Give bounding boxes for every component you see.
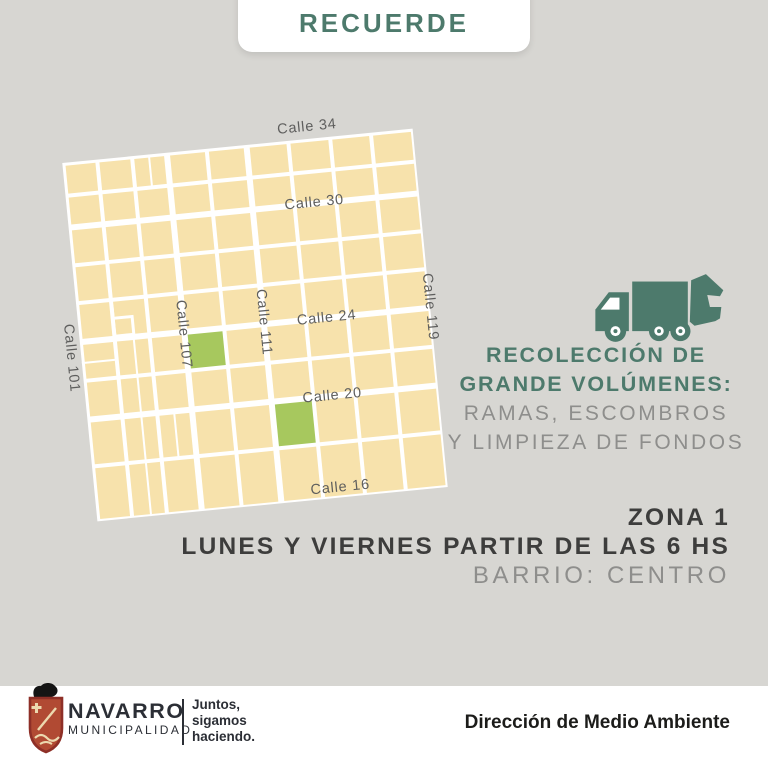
collection-items-line2: Y LIMPIEZA DE FONDOS	[440, 428, 752, 457]
city-block	[173, 184, 210, 214]
slogan: Juntos, sigamos haciendo.	[192, 697, 255, 745]
city-block	[376, 164, 416, 195]
flyer-canvas: RECUERDE Calle 34Calle 30Calle 24Calle 2…	[0, 0, 768, 768]
city-block	[373, 131, 413, 163]
collection-heading-line1: RECOLECCIÓN DE	[440, 341, 752, 370]
city-block	[86, 380, 120, 417]
city-block	[300, 241, 341, 279]
city-block	[379, 197, 420, 234]
city-block	[250, 144, 290, 176]
city-block	[209, 148, 247, 180]
org-block: NAVARRO MUNICIPALIDAD	[68, 700, 192, 738]
city-block	[68, 195, 101, 225]
city-block	[137, 188, 169, 218]
city-block	[200, 455, 240, 509]
city-block	[234, 405, 273, 450]
barrio-label: BARRIO: CENTRO	[181, 561, 730, 590]
city-block	[103, 191, 136, 221]
city-block	[99, 159, 133, 190]
city-block	[239, 451, 279, 505]
garbage-truck-icon	[590, 272, 724, 342]
collection-items-line1: RAMAS, ESCOMBROS	[440, 399, 752, 428]
city-block	[195, 409, 234, 454]
city-block	[332, 135, 372, 167]
city-block	[290, 139, 331, 171]
collection-heading-line2: GRANDE VOLÚMENES:	[440, 370, 752, 399]
slogan-line2: sigamos	[192, 713, 255, 729]
city-block	[65, 162, 98, 193]
slogan-line3: haciendo.	[192, 729, 255, 745]
schedule-days: LUNES Y VIERNES PARTIR DE LAS 6 HS	[181, 532, 730, 561]
page-title: RECUERDE	[238, 8, 530, 39]
footer-divider	[182, 699, 184, 745]
slogan-line1: Juntos,	[192, 697, 255, 713]
city-block	[212, 180, 249, 210]
department-label: Dirección de Medio Ambiente	[465, 712, 730, 734]
city-block	[75, 264, 109, 301]
municipal-crest-icon	[26, 682, 66, 756]
city-block	[398, 389, 439, 434]
city-block	[141, 221, 174, 257]
city-block	[342, 237, 382, 274]
org-subtitle: MUNICIPALIDAD	[68, 722, 192, 738]
schedule-block: ZONA 1 LUNES Y VIERNES PARTIR DE LAS 6 H…	[181, 503, 730, 590]
city-block	[90, 420, 124, 465]
city-block	[215, 213, 253, 249]
header-card: RECUERDE	[238, 0, 530, 52]
collection-info: RECOLECCIÓN DE GRANDE VOLÚMENES: RAMAS, …	[440, 341, 752, 457]
city-block	[71, 227, 105, 263]
zone-street-map: Calle 34Calle 30Calle 24Calle 20Calle 16…	[62, 129, 447, 522]
city-block	[95, 465, 130, 518]
footer-bar: NAVARRO MUNICIPALIDAD Juntos, sigamos ha…	[0, 686, 768, 768]
city-block	[109, 261, 143, 298]
city-block	[403, 434, 445, 488]
org-name: NAVARRO	[68, 700, 192, 722]
city-block	[170, 152, 208, 184]
city-block	[79, 302, 113, 339]
plaza-outline	[112, 315, 136, 338]
zone-label: ZONA 1	[181, 503, 730, 532]
city-block	[106, 224, 140, 260]
city-block	[176, 217, 214, 253]
